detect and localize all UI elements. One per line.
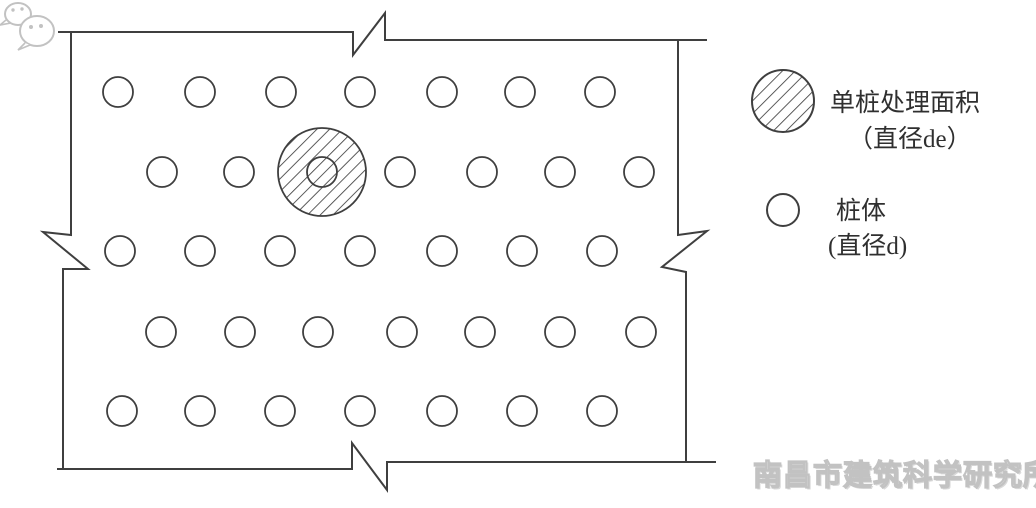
legend-pile-line2: (直径d) — [828, 229, 907, 264]
pile-circle — [225, 317, 255, 347]
pile-circle — [545, 157, 575, 187]
pile-circle — [587, 396, 617, 426]
pile-circle — [626, 317, 656, 347]
pile-circle — [587, 236, 617, 266]
pile-circle — [507, 236, 537, 266]
wechat-icon — [0, 0, 62, 56]
pile-circle — [467, 157, 497, 187]
pile-circle — [265, 396, 295, 426]
pile-circle — [266, 77, 296, 107]
legend-treatment-line1: 单桩处理面积 — [830, 90, 980, 117]
pile-circle — [624, 157, 654, 187]
pile-circle — [185, 77, 215, 107]
pile-circle — [345, 396, 375, 426]
treatment-area-circle — [278, 128, 366, 216]
pile-circle — [345, 77, 375, 107]
legend-symbol-pile — [767, 194, 799, 226]
pile-circle — [146, 317, 176, 347]
pile-circle — [465, 317, 495, 347]
pile-field — [103, 77, 656, 426]
pile-circle — [105, 236, 135, 266]
pile-circle — [107, 396, 137, 426]
pile-circle — [345, 236, 375, 266]
pile-circle — [224, 157, 254, 187]
watermark-text: 南昌市建筑科学研究所 — [753, 452, 1036, 494]
pile-circle — [427, 236, 457, 266]
legend-label-pile: 桩体 (直径d) — [828, 194, 907, 264]
pile-circle — [507, 396, 537, 426]
legend-treatment-line2: （直径de） — [848, 122, 980, 158]
pile-circle — [147, 157, 177, 187]
legend-label-treatment-area: 单桩处理面积 （直径de） — [830, 86, 980, 158]
pile-circle — [585, 77, 615, 107]
legend-pile-line1: 桩体 — [836, 198, 886, 225]
legend-symbol-treatment-area — [752, 70, 814, 132]
pile-circle — [545, 317, 575, 347]
pile-circle — [385, 157, 415, 187]
pile-circle — [427, 77, 457, 107]
pile-circle — [505, 77, 535, 107]
pile-circle — [427, 396, 457, 426]
pile-circle — [303, 317, 333, 347]
pile-circle — [185, 236, 215, 266]
pile-circle — [265, 236, 295, 266]
treatment-inner-pile-circle — [307, 157, 337, 187]
pile-circle — [387, 317, 417, 347]
pile-circle — [185, 396, 215, 426]
pile-layout-diagram: 单桩处理面积 （直径de） 桩体 (直径d) 南昌市建筑科学研究所 — [0, 0, 1036, 508]
pile-circle — [103, 77, 133, 107]
